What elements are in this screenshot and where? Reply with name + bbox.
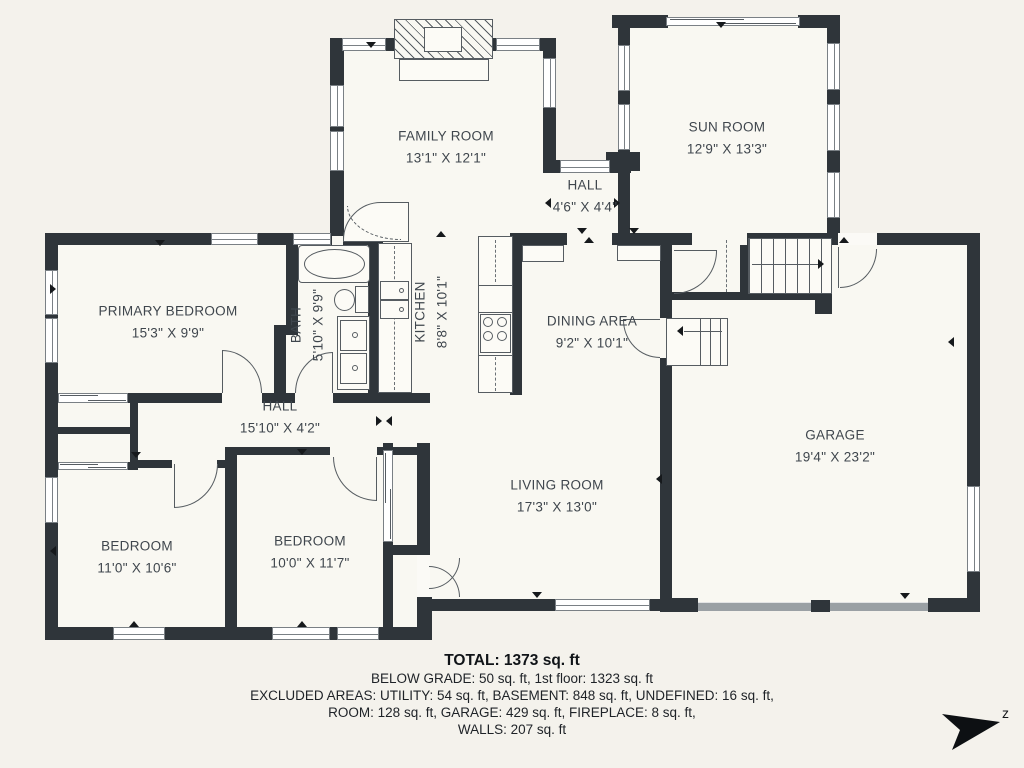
window: [330, 131, 344, 171]
window: [827, 172, 840, 218]
room-label-hall-upper: HALL4'6" X 4'4": [553, 174, 618, 217]
toilet-icon: [355, 286, 369, 313]
window: [272, 627, 330, 640]
window: [293, 233, 331, 245]
window: [827, 43, 840, 90]
dining-counter: [522, 245, 564, 262]
window: [337, 627, 379, 640]
window: [618, 45, 630, 91]
room-label-dining-area: DINING AREA9'2" X 10'1": [547, 310, 637, 353]
stair-direction-arrow: [818, 259, 824, 269]
staircase-down: [666, 318, 728, 366]
window: [543, 58, 556, 108]
room-label-garage: GARAGE19'4" X 23'2": [795, 424, 875, 467]
window: [618, 104, 630, 150]
dining-counter: [617, 245, 661, 261]
hearth: [399, 59, 489, 81]
closet-sliding-door: [58, 462, 128, 470]
room-label-primary-bedroom: PRIMARY BEDROOM15'3" X 9'9": [98, 300, 237, 343]
window: [45, 477, 58, 523]
summary-below-grade: BELOW GRADE: 50 sq. ft, 1st floor: 1323 …: [0, 670, 1024, 687]
window: [555, 599, 650, 611]
window: [342, 38, 386, 51]
svg-text:z: z: [1002, 705, 1009, 721]
summary-total: TOTAL: 1373 sq. ft: [0, 652, 1024, 669]
room-label-bath: BATH5'10" X 9'9": [285, 289, 328, 361]
compass-north-arrow: z: [938, 700, 1014, 758]
closet-sliding-door: [383, 450, 393, 542]
stair-direction-arrow: [677, 326, 683, 336]
window: [211, 233, 258, 245]
garage-door: [698, 602, 811, 611]
window: [330, 85, 344, 127]
room-label-bedroom-left: BEDROOM11'0" X 10'6": [97, 535, 176, 578]
summary-excluded-2: ROOM: 128 sq. ft, GARAGE: 429 sq. ft, FI…: [0, 704, 1024, 721]
summary-excluded-1: EXCLUDED AREAS: UTILITY: 54 sq. ft, BASE…: [0, 687, 1024, 704]
window: [113, 627, 165, 640]
window: [496, 38, 540, 51]
closet-sliding-door: [58, 393, 128, 403]
sliding-door: [666, 17, 800, 26]
kitchen-sink: [380, 281, 409, 300]
kitchen-sink: [380, 300, 409, 319]
room-label-bedroom-center: BEDROOM10'0" X 11'7": [270, 530, 349, 573]
summary-walls: WALLS: 207 sq. ft: [0, 721, 1024, 738]
window: [45, 318, 58, 363]
floor-plan: FAMILY ROOM13'1" X 12'1" SUN ROOM12'9" X…: [0, 0, 1024, 768]
compass-arrow-icon: [942, 714, 1000, 750]
window: [827, 104, 840, 151]
room-label-living-room: LIVING ROOM17'3" X 13'0": [510, 474, 603, 517]
garage-door: [830, 602, 928, 611]
room-label-family-room: FAMILY ROOM13'1" X 12'1": [398, 125, 494, 168]
room-label-sun-room: SUN ROOM12'9" X 13'3": [687, 116, 767, 159]
room-label-kitchen: KITCHEN8'8" X 10'1": [409, 276, 452, 348]
room-label-hall-lower: HALL15'10" X 4'2": [240, 395, 320, 438]
window: [967, 486, 980, 572]
window: [560, 160, 610, 173]
area-summary: TOTAL: 1373 sq. ft BELOW GRADE: 50 sq. f…: [0, 652, 1024, 738]
